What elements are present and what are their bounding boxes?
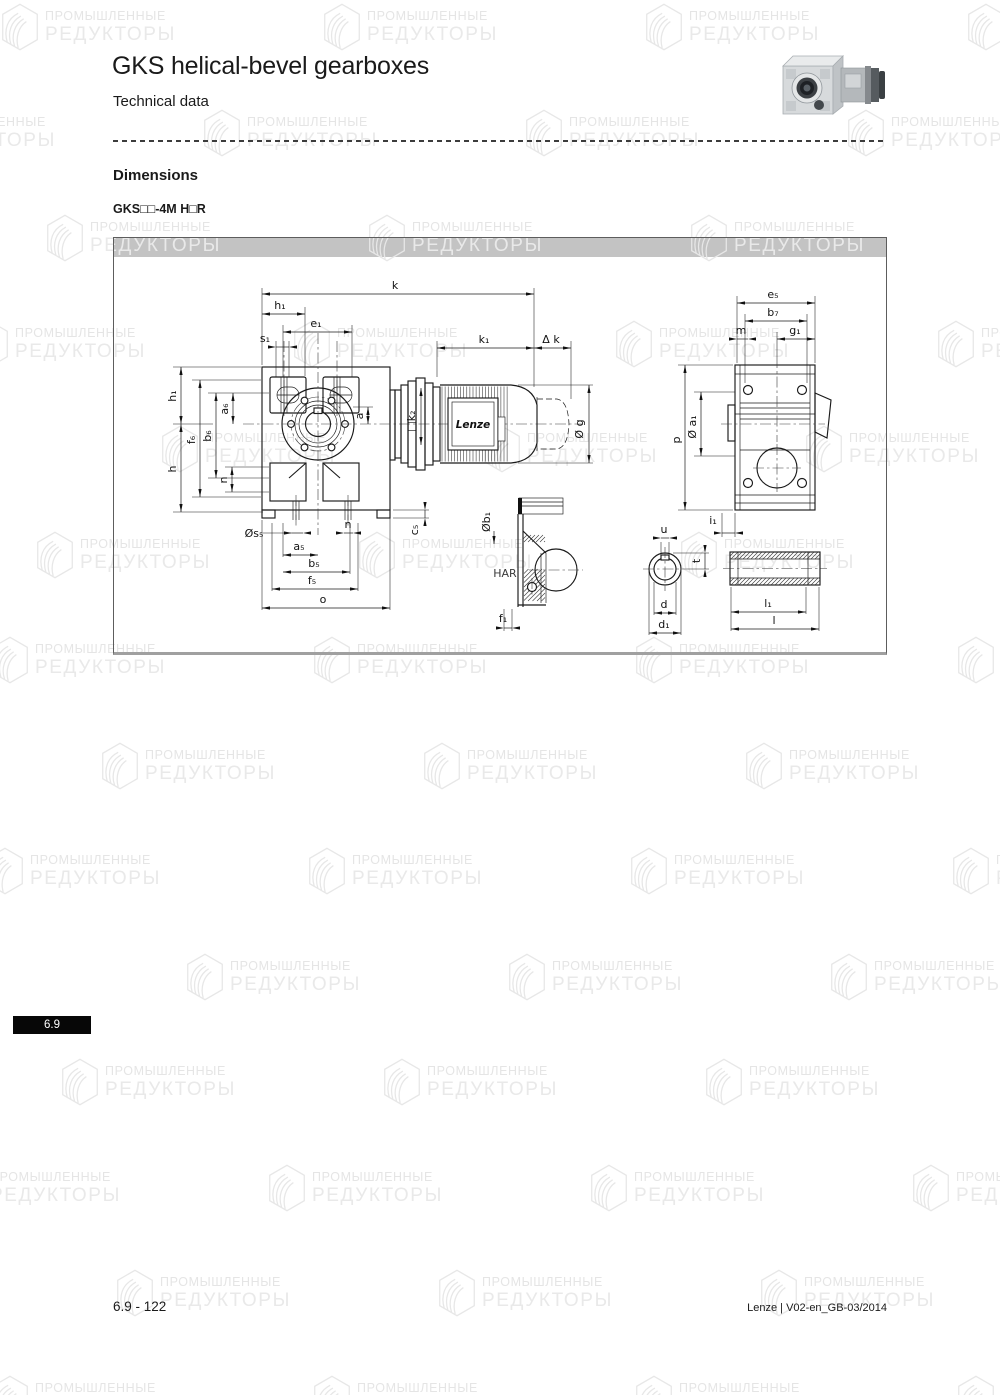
dim-label-e1: e₁ <box>310 317 321 330</box>
dim-label-d1: d₁ <box>658 618 669 631</box>
hatch-line <box>739 552 746 559</box>
dim-label-h: h <box>166 465 179 472</box>
dim-label-n-bottom: n <box>345 518 352 531</box>
watermark-line2: РЕДУКТОРЫ <box>467 763 598 784</box>
dimension-arrowhead <box>423 502 426 510</box>
hatch-line <box>763 578 770 585</box>
watermark-text: ПРОМЫШЛЕННЫЕ РЕДУКТОРЫ <box>230 959 361 995</box>
hatch-line <box>739 578 746 585</box>
hatch-line <box>799 578 806 585</box>
dimension-arrowhead <box>526 292 534 295</box>
watermark-hexagon-logo-icon <box>951 846 991 896</box>
dimension-arrowhead <box>683 502 686 510</box>
hatch-line <box>544 541 545 542</box>
watermark-text: ПРОМЫШЛЕННЫЕ РЕДУКТОРЫ <box>956 1170 1000 1206</box>
watermark-text: ПРОМЫШЛЕННЫЕ РЕДУКТОРЫ <box>569 115 700 151</box>
dimension-arrowhead <box>745 319 753 322</box>
watermark-line1: ПРОМЫШЛЕННЫЕ <box>0 115 56 130</box>
watermark-hexagon-logo-icon <box>60 1057 100 1107</box>
dimension-arrowhead <box>807 337 815 340</box>
watermark-line1: ПРОМЫШЛЕННЫЕ <box>981 326 1000 341</box>
hatch-line <box>811 578 818 585</box>
watermark-line2: РЕДУКТОРЫ <box>674 868 805 889</box>
watermark-hexagon-logo-icon <box>956 1374 996 1395</box>
watermark-hexagon-logo-icon <box>644 2 684 52</box>
watermark-line1: ПРОМЫШЛЕННЫЕ <box>160 1275 291 1290</box>
watermark-hexagon-logo-icon <box>911 1163 951 1213</box>
dim-label-k1: k₁ <box>479 333 490 346</box>
dim-label-l: l <box>772 614 775 627</box>
watermark-line2: РЕДУКТОРЫ <box>352 868 483 889</box>
watermark-line1: ПРОМЫШЛЕННЫЕ <box>90 220 221 235</box>
hatch-line <box>747 578 754 585</box>
watermark-line1: ПРОМЫШЛЕННЫЕ <box>0 1170 121 1185</box>
hatch-line <box>787 578 794 585</box>
watermark-text: ПРОМЫШЛЕННЫЕ РЕДУКТОРЫ <box>891 115 1000 151</box>
hatch-line <box>540 537 545 542</box>
dimension-arrowhead <box>179 367 182 375</box>
hatch-line <box>743 552 750 559</box>
watermark-text: ПРОМЫШЛЕННЫЕ РЕДУКТОРЫ <box>357 1381 488 1395</box>
watermark-hexagon-logo-icon <box>524 108 564 158</box>
dimension-arrowhead <box>179 504 182 512</box>
watermark-text: ПРОМЫШЛЕННЫЕ РЕДУКТОРЫ <box>789 748 920 784</box>
dimension-arrowhead <box>703 545 706 553</box>
watermark-hexagon-logo-icon <box>382 1057 422 1107</box>
gearbox-photo <box>775 44 893 131</box>
hatch-line <box>811 552 818 559</box>
dim-label-d: d <box>661 598 668 611</box>
watermark-text: ПРОМЫШЛЕННЫЕ РЕДУКТОРЫ <box>467 748 598 784</box>
hatch-line <box>815 580 820 585</box>
watermark: ПРОМЫШЛЕННЫЕ РЕДУКТОРЫ <box>0 1374 166 1395</box>
hatch-line <box>771 552 778 559</box>
watermark-line2: РЕДУКТОРЫ <box>874 974 1000 995</box>
watermark-text: ПРОМЫШЛЕННЫЕ РЕДУКТОРЫ <box>105 1064 236 1100</box>
watermark: ПРОМЫШЛЕННЫЕ РЕДУКТОРЫ <box>936 319 1000 369</box>
dim-label-s1: s₁ <box>260 332 270 345</box>
front-view <box>243 333 583 535</box>
watermark-line2: РЕДУКТОРЫ <box>427 1079 558 1100</box>
watermark: ПРОМЫШЛЕННЫЕ РЕДУКТОРЫ <box>829 952 1000 1002</box>
watermark-line2: РЕДУКТОРЫ <box>160 1290 291 1311</box>
watermark-hexagon-logo-icon <box>307 846 347 896</box>
watermark-hexagon-logo-icon <box>507 952 547 1002</box>
dimension-arrowhead <box>350 587 358 590</box>
watermark-line2: РЕДУКТОРЫ <box>45 24 176 45</box>
dim-label-f5: f₅ <box>308 574 316 587</box>
watermark-hexagon-logo-icon <box>0 2 40 52</box>
watermark-line1: ПРОМЫШЛЕННЫЕ <box>749 1064 880 1079</box>
dimension-arrowhead <box>283 330 291 333</box>
dim-label-b5: b₅ <box>308 557 319 570</box>
dim-label-c5: c₅ <box>408 525 421 535</box>
dimension-arrowhead <box>587 455 590 463</box>
dimension-arrowhead <box>496 626 504 629</box>
dimension-arrowhead <box>526 346 534 349</box>
watermark-line1: ПРОМЫШЛЕННЫЕ <box>247 115 378 130</box>
hatch-line <box>755 578 762 585</box>
watermark-line2: РЕДУКТОРЫ <box>789 763 920 784</box>
hatch-line <box>524 569 529 574</box>
watermark: ПРОМЫШЛЕННЫЕ РЕДУКТОРЫ <box>100 741 276 791</box>
dimension-arrowhead <box>654 611 662 614</box>
dim-label-m: m <box>736 324 747 337</box>
watermark-hexagon-logo-icon <box>704 1057 744 1107</box>
hatch-line <box>803 552 810 559</box>
watermark: ПРОМЫШЛЕННЫЕ РЕДУКТОРЫ <box>589 1163 765 1213</box>
dim-label-a1: Ø a₁ <box>686 415 699 438</box>
watermark-line2: РЕДУКТОРЫ <box>312 1185 443 1206</box>
watermark: ПРОМЫШЛЕННЫЕ РЕДУКТОРЫ <box>524 108 700 158</box>
watermark: ПРОМЫШЛЕННЫЕ РЕДУКТОРЫ <box>911 1163 1000 1213</box>
hatch-line <box>735 578 742 585</box>
watermark-hexagon-logo-icon <box>35 530 75 580</box>
hatch-line <box>795 552 802 559</box>
watermark: ПРОМЫШЛЕННЫЕ РЕДУКТОРЫ <box>0 1163 121 1213</box>
watermark-hexagon-logo-icon <box>589 1163 629 1213</box>
dimension-arrowhead <box>512 626 520 629</box>
dimension-arrowhead <box>231 393 234 401</box>
watermark-text: ПРОМЫШЛЕННЫЕ РЕДУКТОРЫ <box>427 1064 558 1100</box>
dimension-arrowhead <box>699 392 702 400</box>
watermark-hexagon-logo-icon <box>956 635 996 685</box>
watermark-hexagon-logo-icon <box>829 952 869 1002</box>
watermark-hexagon-logo-icon <box>744 741 784 791</box>
watermark-line1: ПРОМЫШЛЕННЫЕ <box>804 1275 935 1290</box>
dimension-arrowhead <box>668 611 676 614</box>
dimension-arrowhead <box>729 337 737 340</box>
watermark-text: ПРОМЫШЛЕННЫЕ РЕДУКТОРЫ <box>674 853 805 889</box>
watermark-hexagon-logo-icon <box>422 741 462 791</box>
watermark-line1: ПРОМЫШЛЕННЫЕ <box>569 115 700 130</box>
dim-label-t: t <box>690 558 703 563</box>
dim-label-k2: □k₂ <box>405 410 418 431</box>
dimension-arrowhead <box>382 606 390 609</box>
dimension-arrowhead <box>353 531 361 534</box>
watermark-line2: РЕДУКТОРЫ <box>996 868 1000 889</box>
watermark-line1: ПРОМЫШЛЕННЫЕ <box>35 1381 166 1395</box>
watermark-line2: РЕДУКТОРЫ <box>145 763 276 784</box>
watermark-hexagon-logo-icon <box>0 1374 30 1395</box>
dimension-arrowhead <box>534 346 542 349</box>
watermark-line2: РЕДУКТОРЫ <box>35 657 166 678</box>
dimension-arrowhead <box>587 385 590 393</box>
dimension-arrowhead <box>683 365 686 373</box>
dimension-arrowhead <box>699 448 702 456</box>
hatch-line <box>787 552 794 559</box>
dashed-divider <box>113 140 887 142</box>
watermark: ПРОМЫШЛЕННЫЕ РЕДУКТОРЫ <box>307 846 483 896</box>
page-title: GKS helical-bevel gearboxes <box>112 52 429 81</box>
watermark-text: ПРОМЫШЛЕННЫЕ РЕДУКТОРЫ <box>145 748 276 784</box>
dimension-arrowhead <box>653 536 661 539</box>
watermark: ПРОМЫШЛЕННЫЕ РЕДУКТОРЫ <box>966 2 1000 52</box>
catalog-page: ПРОМЫШЛЕННЫЕ РЕДУКТОРЫ ПРОМЫШЛЕННЫЕ РЕДУ… <box>0 0 1000 1395</box>
dimension-arrowhead <box>214 393 217 401</box>
dim-label-a5: a₅ <box>293 540 304 553</box>
dimension-arrowhead <box>344 330 352 333</box>
watermark: ПРОМЫШЛЕННЫЕ РЕДУКТОРЫ <box>0 2 176 52</box>
footer-doc-reference: Lenze | V02-en_GB-03/2014 <box>747 1302 887 1314</box>
model-designation: GKS□□-4M H□R <box>113 202 206 216</box>
watermark-line2: РЕДУКТОРЫ <box>749 1079 880 1100</box>
dimension-arrowhead <box>419 437 422 445</box>
hatch-line <box>775 552 782 559</box>
watermark-text: ПРОМЫШЛЕННЫЕ РЕДУКТОРЫ <box>367 9 498 45</box>
watermark-line1: ПРОМЫШЛЕННЫЕ <box>45 9 176 24</box>
dimension-arrowhead <box>262 292 270 295</box>
watermark-text: ПРОМЫШЛЕННЫЕ РЕДУКТОРЫ <box>689 9 820 45</box>
dim-label-h1-top: h₁ <box>274 299 285 312</box>
dimension-arrowhead <box>268 345 276 348</box>
hatch-line <box>743 578 750 585</box>
page-subtitle: Technical data <box>113 93 209 110</box>
watermark-line2: РЕДУКТОРЫ <box>956 1185 1000 1206</box>
dimension-arrowhead <box>289 345 297 348</box>
dimension-arrowhead <box>283 553 291 556</box>
watermark-hexagon-logo-icon <box>634 1374 674 1395</box>
watermark-hexagon-logo-icon <box>267 1163 307 1213</box>
hatch-line <box>779 552 786 559</box>
dimension-arrowhead <box>342 570 350 573</box>
watermark: ПРОМЫШЛЕННЫЕ РЕДУКТОРЫ <box>322 2 498 52</box>
watermark: ПРОМЫШЛЕННЫЕ РЕДУКТОРЫ <box>956 635 1000 685</box>
watermark: ПРОМЫШЛЕННЫЕ РЕДУКТОРЫ <box>312 1374 488 1395</box>
dim-label-o: o <box>320 593 327 606</box>
watermark-line1: ПРОМЫШЛЕННЫЕ <box>412 220 543 235</box>
watermark-hexagon-logo-icon <box>202 108 242 158</box>
dim-label-n-left: n <box>217 476 230 483</box>
hatch-line <box>542 598 546 602</box>
dimension-arrowhead <box>669 536 677 539</box>
hatch-line <box>791 578 798 585</box>
watermark-text: ПРОМЫШЛЕННЫЕ РЕДУКТОРЫ <box>996 853 1000 889</box>
dimension-arrowhead <box>714 531 722 534</box>
hatch-line <box>767 552 774 559</box>
watermark-line2: РЕДУКТОРЫ <box>689 24 820 45</box>
shaft-cross-section <box>643 547 687 591</box>
hatch-line <box>532 535 539 542</box>
hatch-line <box>759 578 766 585</box>
watermark: ПРОМЫШЛЕННЫЕ РЕДУКТОРЫ <box>629 846 805 896</box>
watermark: ПРОМЫШЛЕННЫЕ РЕДУКТОРЫ <box>437 1268 613 1318</box>
hatch-line <box>799 552 806 559</box>
watermark: ПРОМЫШЛЕННЫЕ РЕДУКТОРЫ <box>422 741 598 791</box>
watermark-text: ПРОМЫШЛЕННЫЕ РЕДУКТОРЫ <box>679 1381 810 1395</box>
watermark-line2: РЕДУКТОРЫ <box>230 974 361 995</box>
watermark-line2: РЕДУКТОРЫ <box>0 130 56 151</box>
dim-label-g1: g₁ <box>789 324 800 337</box>
watermark: ПРОМЫШЛЕННЫЕ РЕДУКТОРЫ <box>744 741 920 791</box>
dimension-arrowhead <box>737 301 745 304</box>
watermark: ПРОМЫШЛЕННЫЕ РЕДУКТОРЫ <box>267 1163 443 1213</box>
dim-label-g: Ø g <box>573 419 586 438</box>
dimension-arrowhead <box>423 518 426 526</box>
watermark-line1: ПРОМЫШЛЕННЫЕ <box>734 220 865 235</box>
watermark-hexagon-logo-icon <box>0 319 10 369</box>
dim-label-h1-left: h₁ <box>166 390 179 401</box>
dimension-arrowhead <box>231 416 234 424</box>
watermark-hexagon-logo-icon <box>100 741 140 791</box>
hatch-line <box>751 578 758 585</box>
hatch-line <box>735 552 742 559</box>
watermark-hexagon-logo-icon <box>936 319 976 369</box>
watermark: ПРОМЫШЛЕННЫЕ РЕДУКТОРЫ <box>60 1057 236 1107</box>
dim-label-b6: b₆ <box>201 430 214 442</box>
dimension-arrowhead <box>366 416 369 424</box>
dimension-arrowhead <box>563 346 571 349</box>
watermark-line2: РЕДУКТОРЫ <box>367 24 498 45</box>
watermark-line1: ПРОМЫШЛЕННЫЕ <box>689 9 820 24</box>
footer-page-number: 6.9 - 122 <box>113 1299 166 1314</box>
watermark: ПРОМЫШЛЕННЫЕ РЕДУКТОРЫ <box>634 1374 810 1395</box>
hatch-line <box>779 578 786 585</box>
dimension-arrowhead <box>297 312 305 315</box>
dim-label-a6: a₆ <box>218 403 231 415</box>
section-heading: Dimensions <box>113 167 198 184</box>
hollow-shaft-section <box>723 552 827 585</box>
dimension-arrowhead <box>419 388 422 396</box>
watermark-text: ПРОМЫШЛЕННЫЕ РЕДУКТОРЫ <box>552 959 683 995</box>
dimension-drawing: Lenze <box>113 237 887 655</box>
watermark-text: ПРОМЫШЛЕННЫЕ РЕДУКТОРЫ <box>352 853 483 889</box>
dimension-arrowhead <box>731 627 739 630</box>
watermark: ПРОМЫШЛЕННЫЕ РЕДУКТОРЫ <box>382 1057 558 1107</box>
watermark-line2: РЕДУКТОРЫ <box>981 341 1000 362</box>
watermark-hexagon-logo-icon <box>322 2 362 52</box>
dimension-arrowhead <box>437 346 445 349</box>
watermark-text: ПРОМЫШЛЕННЫЕ РЕДУКТОРЫ <box>0 1170 121 1206</box>
watermark: ПРОМЫШЛЕННЫЕ РЕДУКТОРЫ <box>704 1057 880 1107</box>
dimension-arrowhead <box>811 627 819 630</box>
hatch-line <box>730 552 734 556</box>
watermark-line1: ПРОМЫШЛЕННЫЕ <box>30 853 161 868</box>
watermark-text: ПРОМЫШЛЕННЫЕ РЕДУКТОРЫ <box>981 326 1000 362</box>
dimension-arrowhead <box>284 531 292 534</box>
watermark-line2: РЕДУКТОРЫ <box>30 868 161 889</box>
watermark-hexagon-logo-icon <box>437 1268 477 1318</box>
hatch-line <box>783 552 790 559</box>
dimension-arrowhead <box>807 301 815 304</box>
watermark-line1: ПРОМЫШЛЕННЫЕ <box>357 1381 488 1395</box>
watermark-text: ПРОМЫШЛЕННЫЕ РЕДУКТОРЫ <box>30 853 161 889</box>
watermark-hexagon-logo-icon <box>629 846 669 896</box>
dimension-arrowhead <box>492 536 495 544</box>
dimension-lines: k k₁ Δ k h₁ e₁ s₁ h₁ h <box>166 279 819 635</box>
watermark-hexagon-logo-icon <box>0 635 30 685</box>
watermark-hexagon-logo-icon <box>312 1374 352 1395</box>
watermark-line1: ПРОМЫШЛЕННЫЕ <box>482 1275 613 1290</box>
hatch-line <box>755 552 762 559</box>
hatch-line <box>731 578 738 585</box>
dim-label-f6: f₆ <box>185 435 198 444</box>
watermark-line2: РЕДУКТОРЫ <box>482 1290 613 1311</box>
dim-label-p: p <box>670 436 683 443</box>
dimension-arrowhead <box>283 570 291 573</box>
dimension-arrowhead <box>649 631 657 634</box>
hatch-line <box>771 578 778 585</box>
dim-label-b7: b₇ <box>767 306 778 319</box>
watermark-text: ПРОМЫШЛЕННЫЕ РЕДУКТОРЫ <box>160 1275 291 1311</box>
watermark-line2: РЕДУКТОРЫ <box>891 130 1000 151</box>
watermark-line1: ПРОМЫШЛЕННЫЕ <box>427 1064 558 1079</box>
watermark-line1: ПРОМЫШЛЕННЫЕ <box>996 853 1000 868</box>
watermark-text: ПРОМЫШЛЕННЫЕ РЕДУКТОРЫ <box>0 115 56 151</box>
dim-label-dk: Δ k <box>542 333 560 346</box>
dimension-arrowhead <box>777 337 785 340</box>
hatch-line <box>783 578 790 585</box>
dimension-arrowhead <box>262 606 270 609</box>
watermark-line1: ПРОМЫШЛЕННЫЕ <box>874 959 1000 974</box>
dimension-arrowhead <box>748 337 756 340</box>
dim-label-k: k <box>392 279 399 292</box>
dimension-arrowhead <box>798 610 806 613</box>
watermark-text: ПРОМЫШЛЕННЫЕ РЕДУКТОРЫ <box>634 1170 765 1206</box>
hatch-line <box>731 552 738 559</box>
watermark: ПРОМЫШЛЕННЫЕ РЕДУКТОРЫ <box>951 846 1000 896</box>
har-view-label: HAR <box>493 567 517 580</box>
hatch-line <box>815 554 820 559</box>
watermark-text: ПРОМЫШЛЕННЫЕ РЕДУКТОРЫ <box>45 9 176 45</box>
hatch-line <box>767 578 774 585</box>
dim-label-f1: f₁ <box>499 612 507 625</box>
dimension-arrowhead <box>799 319 807 322</box>
watermark-line2: РЕДУКТОРЫ <box>0 1185 121 1206</box>
dim-label-s5: Øs₅ <box>245 527 264 540</box>
hatch-line <box>536 535 543 542</box>
watermark: ПРОМЫШЛЕННЫЕ РЕДУКТОРЫ <box>185 952 361 1002</box>
chapter-badge: 6.9 <box>13 1016 91 1034</box>
dimension-arrowhead <box>272 587 280 590</box>
dimension-arrowhead <box>230 467 233 475</box>
watermark-hexagon-logo-icon <box>0 846 25 896</box>
dimension-arrowhead <box>731 610 739 613</box>
hatch-line <box>759 552 766 559</box>
hatch-line <box>763 552 770 559</box>
dimension-arrowhead <box>673 631 681 634</box>
watermark: ПРОМЫШЛЕННЫЕ РЕДУКТОРЫ <box>202 108 378 158</box>
watermark: ПРОМЫШЛЕННЫЕ РЕДУКТОРЫ <box>956 1374 1000 1395</box>
watermark-text: ПРОМЫШЛЕННЫЕ РЕДУКТОРЫ <box>35 1381 166 1395</box>
watermark-text: ПРОМЫШЛЕННЫЕ РЕДУКТОРЫ <box>874 959 1000 995</box>
watermark-line1: ПРОМЫШЛЕННЫЕ <box>145 748 276 763</box>
watermark-hexagon-logo-icon <box>45 213 85 263</box>
dim-label-e5: e₅ <box>767 288 778 301</box>
watermark-text: ПРОМЫШЛЕННЫЕ РЕДУКТОРЫ <box>247 115 378 151</box>
watermark-hexagon-logo-icon <box>966 2 1000 52</box>
hatch-line <box>730 578 734 582</box>
hatch-line <box>747 552 754 559</box>
watermark-line1: ПРОМЫШЛЕННЫЕ <box>105 1064 236 1079</box>
dim-label-a: a <box>353 413 366 420</box>
hatch-line <box>751 552 758 559</box>
watermark-hexagon-logo-icon <box>185 952 225 1002</box>
watermark-line1: ПРОМЫШЛЕННЫЕ <box>230 959 361 974</box>
watermark-line1: ПРОМЫШЛЕННЫЕ <box>891 115 1000 130</box>
dimension-arrowhead <box>703 569 706 577</box>
dimension-arrowhead <box>198 380 201 388</box>
watermark-text: ПРОМЫШЛЕННЫЕ РЕДУКТОРЫ <box>482 1275 613 1311</box>
watermark: ПРОМЫШЛЕННЫЕ РЕДУКТОРЫ <box>0 846 161 896</box>
watermark-line2: РЕДУКТОРЫ <box>634 1185 765 1206</box>
watermark-line2: РЕДУКТОРЫ <box>679 657 810 678</box>
watermark-line1: ПРОМЫШЛЕННЫЕ <box>634 1170 765 1185</box>
dimension-arrowhead <box>303 531 311 534</box>
hatch-line <box>803 578 810 585</box>
dimension-arrowhead <box>735 531 743 534</box>
dimension-arrowhead <box>230 484 233 492</box>
